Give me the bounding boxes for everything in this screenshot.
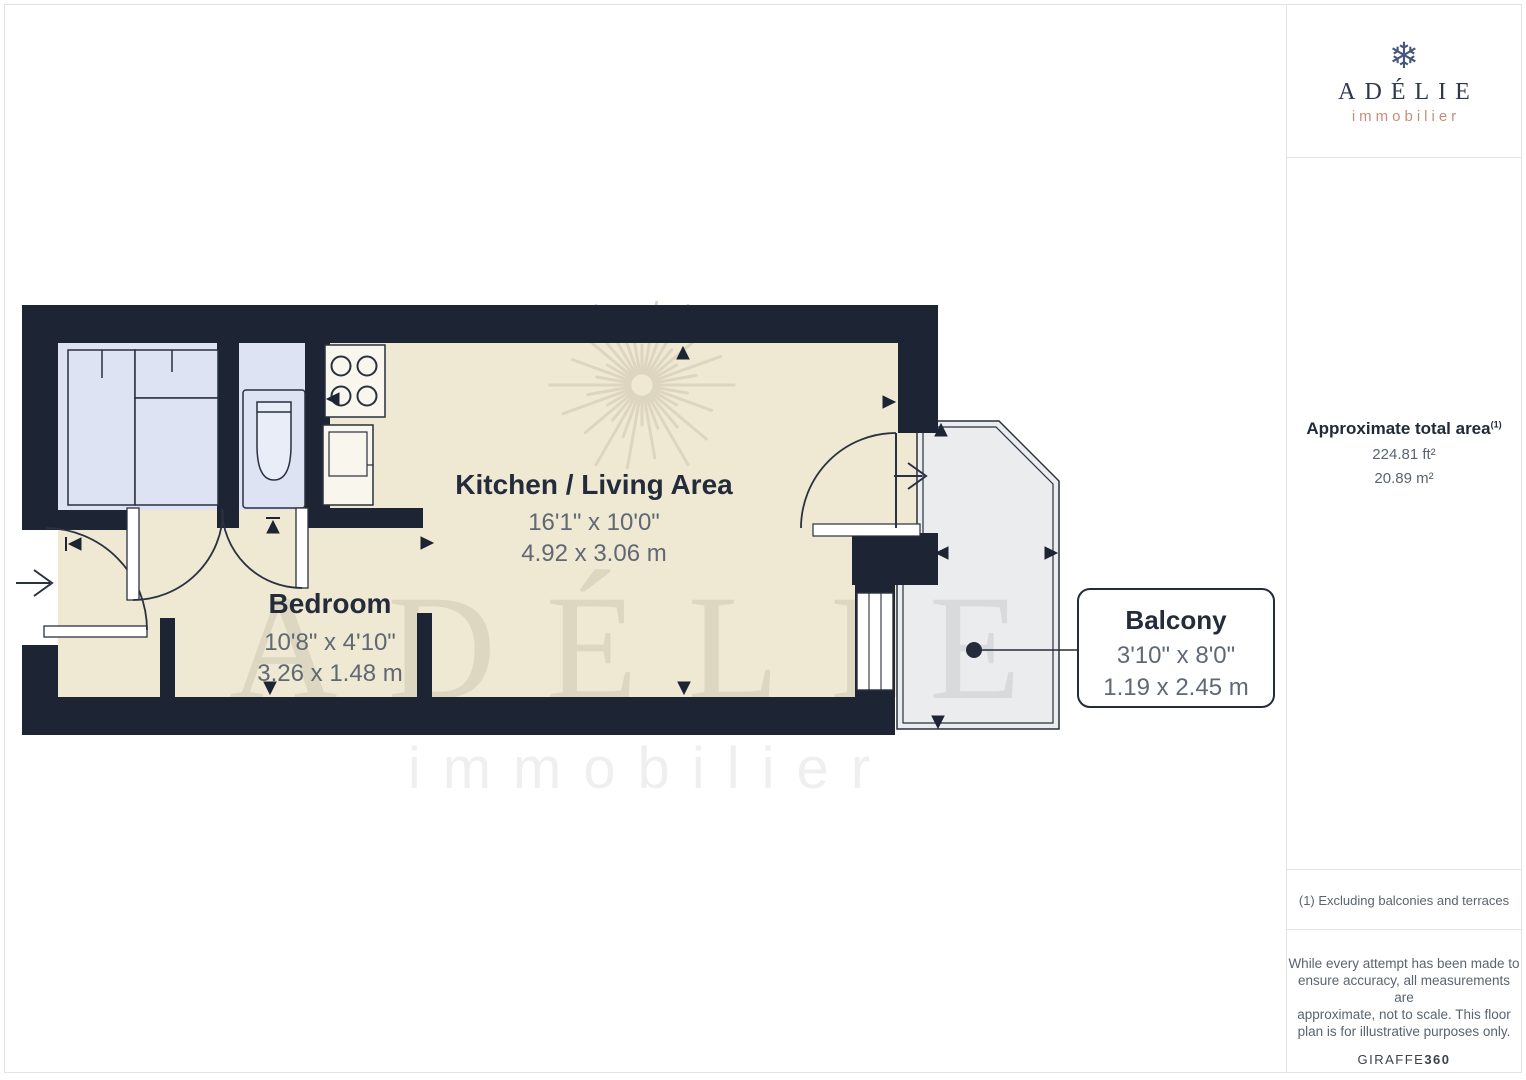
total-area-imperial: 224.81 ft² (1287, 446, 1521, 463)
wall (417, 613, 432, 697)
provider-logo: GIRAFFE360 (1287, 1051, 1521, 1068)
wall (898, 305, 938, 433)
total-area-block: Approximate total area(1) 224.81 ft² 20.… (1287, 419, 1521, 487)
room-name-bedroom: Bedroom (269, 588, 392, 619)
room-name-kitchen-living: Kitchen / Living Area (455, 469, 733, 500)
disclaimer-line: approximate, not to scale. This floor (1287, 1006, 1521, 1023)
wall (852, 533, 938, 585)
wall (160, 618, 175, 697)
wall (22, 305, 938, 343)
footnote-marker: (1) (1491, 419, 1502, 429)
room-name-balcony: Balcony (1125, 605, 1227, 635)
room-dim-metric: 1.19 x 2.45 m (1103, 674, 1248, 701)
room-dim-imperial: 3'10" x 8'0" (1117, 642, 1235, 669)
wall (22, 697, 895, 735)
vanity-top (135, 350, 218, 398)
disclaimer-line: While every attempt has been made to (1287, 955, 1521, 972)
disclaimer: While every attempt has been made to ens… (1287, 929, 1521, 1072)
balcony-door-threshold (813, 524, 920, 536)
footnote: (1) Excluding balconies and terraces (1287, 869, 1521, 930)
wall (305, 508, 423, 528)
snowflake-icon: ❄ (1389, 37, 1419, 75)
entry-arrow-icon (16, 570, 52, 596)
wall (22, 305, 58, 530)
agency-logo: ❄ ADÉLIE immobilier (1287, 5, 1521, 158)
room-dim-metric: 3.26 x 1.48 m (257, 660, 402, 687)
toilet (243, 390, 305, 508)
callout-anchor-dot (966, 642, 982, 658)
agency-subtitle: immobilier (1348, 108, 1460, 125)
kitchen-sink-unit (323, 425, 373, 505)
watermark-subtitle: immobilier (408, 736, 892, 801)
stove (325, 345, 385, 417)
disclaimer-line: ensure accuracy, all measurements are (1287, 972, 1521, 1006)
room-dim-imperial: 10'8" x 4'10" (264, 629, 396, 656)
vanity-bottom (135, 398, 218, 505)
info-sidebar: ❄ ADÉLIE immobilier Approximate total ar… (1286, 5, 1521, 1072)
room-dim-metric: 4.92 x 3.06 m (521, 540, 666, 567)
floor-plan-page: ADÉLIE immobilier (0, 0, 1526, 1080)
agency-name: ADÉLIE (1329, 79, 1479, 106)
window (857, 593, 893, 690)
total-area-metric: 20.89 m² (1287, 470, 1521, 487)
disclaimer-line: plan is for illustrative purposes only. (1287, 1023, 1521, 1040)
room-dim-imperial: 16'1" x 10'0" (528, 509, 660, 536)
wall (217, 343, 239, 528)
wall (58, 510, 127, 530)
total-area-title: Approximate total area(1) (1287, 419, 1521, 439)
